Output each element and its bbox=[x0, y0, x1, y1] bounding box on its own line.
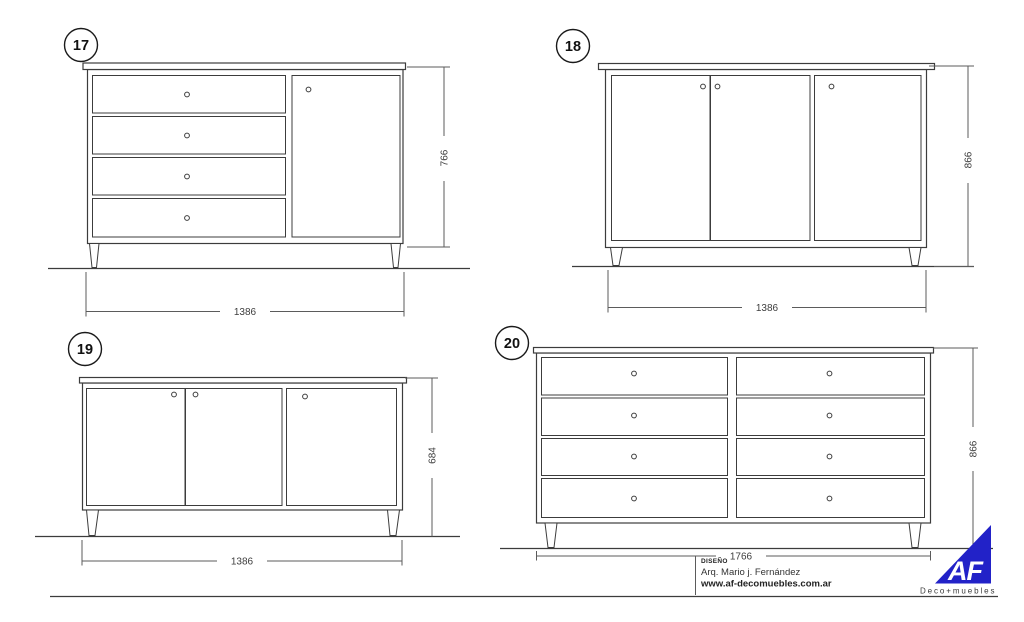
leg bbox=[909, 523, 921, 548]
leg bbox=[391, 244, 401, 268]
knob bbox=[185, 174, 190, 179]
title-block: DISEÑO Arq. Mario j. Fernández www.af-de… bbox=[50, 556, 998, 597]
knob bbox=[303, 394, 308, 399]
cabinet-top-board bbox=[599, 64, 935, 70]
door-panel bbox=[815, 76, 922, 241]
figure-18-number: 18 bbox=[565, 39, 581, 55]
drawing-sheet: 17 1386 766 1 bbox=[0, 0, 1024, 622]
knob bbox=[306, 87, 311, 92]
knob bbox=[827, 371, 832, 376]
designer-name: Arq. Mario j. Fernández bbox=[701, 567, 801, 578]
figure-20: 20 1766 866 bbox=[496, 327, 994, 563]
knob bbox=[632, 413, 637, 418]
door-panel bbox=[87, 389, 186, 506]
knob bbox=[827, 454, 832, 459]
figure-20-number: 20 bbox=[504, 336, 520, 352]
height-dimension: 684 bbox=[405, 378, 439, 537]
door-panel bbox=[711, 76, 811, 241]
width-dimension-label: 1386 bbox=[234, 307, 257, 318]
door-panel bbox=[287, 389, 397, 506]
height-dimension-label: 866 bbox=[969, 440, 980, 457]
width-dimension: 1386 bbox=[608, 270, 926, 314]
width-dimension-label: 1386 bbox=[231, 557, 254, 568]
knob bbox=[701, 84, 706, 89]
leg bbox=[545, 523, 557, 548]
height-dimension: 866 bbox=[929, 66, 975, 267]
leg bbox=[87, 510, 99, 536]
figure-17: 17 1386 766 bbox=[48, 29, 470, 319]
website-text: www.af-decomuebles.com.ar bbox=[700, 579, 832, 590]
width-dimension: 1386 bbox=[86, 272, 404, 318]
design-label: DISEÑO bbox=[701, 556, 728, 565]
cabinet-top-board bbox=[83, 63, 406, 70]
door-panel bbox=[292, 76, 400, 238]
knob bbox=[632, 454, 637, 459]
knob bbox=[715, 84, 720, 89]
figure-19: 19 1386 684 bbox=[35, 333, 460, 568]
width-dimension: 1386 bbox=[82, 540, 402, 568]
knob bbox=[185, 133, 190, 138]
knob bbox=[193, 392, 198, 397]
logo-monogram: AF bbox=[947, 556, 984, 586]
height-dimension: 766 bbox=[407, 67, 451, 247]
knob bbox=[185, 92, 190, 97]
brand-logo: AF Deco+muebles bbox=[920, 525, 996, 596]
figure-18: 18 1386 866 bbox=[557, 30, 975, 315]
knob bbox=[632, 371, 637, 376]
knob bbox=[829, 84, 834, 89]
drawing-canvas: 17 1386 766 1 bbox=[0, 0, 1024, 622]
height-dimension-label: 684 bbox=[428, 447, 439, 464]
logo-tagline: Deco+muebles bbox=[920, 587, 996, 596]
drawer-front bbox=[737, 358, 925, 396]
cabinet-top-board bbox=[534, 348, 934, 354]
knob bbox=[632, 496, 637, 501]
cabinet-top-board bbox=[80, 378, 407, 384]
knob bbox=[185, 216, 190, 221]
leg bbox=[909, 248, 921, 266]
height-dimension-label: 866 bbox=[964, 151, 975, 168]
height-dimension: 866 bbox=[933, 348, 980, 548]
width-dimension-label: 1386 bbox=[756, 303, 779, 314]
figure-17-number: 17 bbox=[73, 38, 89, 54]
door-panel bbox=[612, 76, 711, 241]
figure-19-number: 19 bbox=[77, 342, 93, 358]
knob bbox=[172, 392, 177, 397]
width-dimension-label: 1766 bbox=[730, 552, 753, 563]
leg bbox=[90, 244, 100, 268]
leg bbox=[388, 510, 400, 536]
door-panel bbox=[186, 389, 283, 506]
height-dimension-label: 766 bbox=[440, 149, 451, 166]
leg bbox=[611, 248, 623, 266]
knob bbox=[827, 496, 832, 501]
width-dimension: 1766 bbox=[537, 551, 931, 563]
knob bbox=[827, 413, 832, 418]
